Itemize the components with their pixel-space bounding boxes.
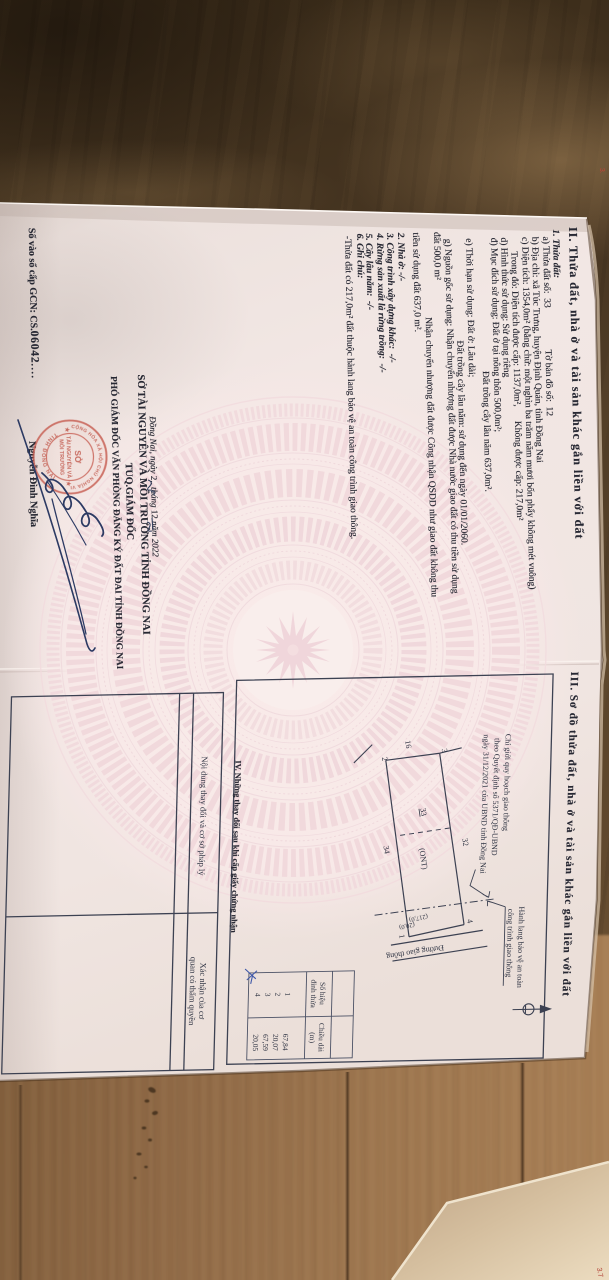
svg-text:3.: 3.	[598, 168, 605, 174]
